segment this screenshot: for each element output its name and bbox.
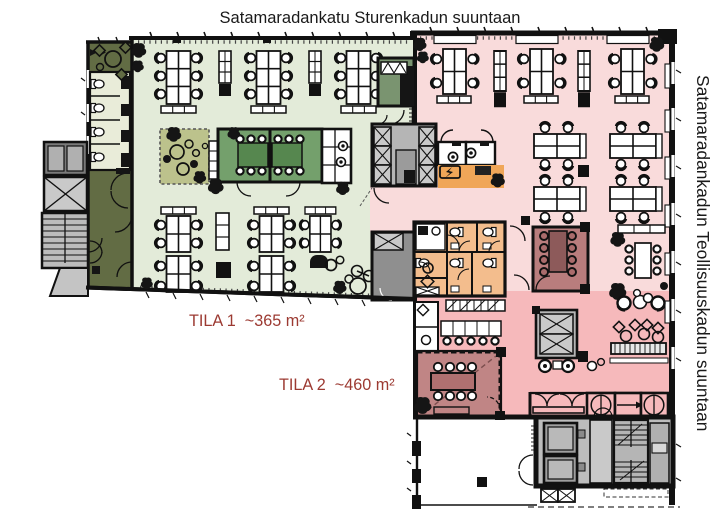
svg-text:Satamaradankadun Teollisuuskad: Satamaradankadun Teollisuuskadun suuntaa… <box>693 75 713 431</box>
svg-text:TILA 1 ~365 m²: TILA 1 ~365 m² <box>189 312 305 330</box>
svg-text:Satamaradankatu Sturenkadun su: Satamaradankatu Sturenkadun suuntaan <box>220 9 521 27</box>
svg-text:TILA 2 ~460 m²: TILA 2 ~460 m² <box>279 376 395 394</box>
